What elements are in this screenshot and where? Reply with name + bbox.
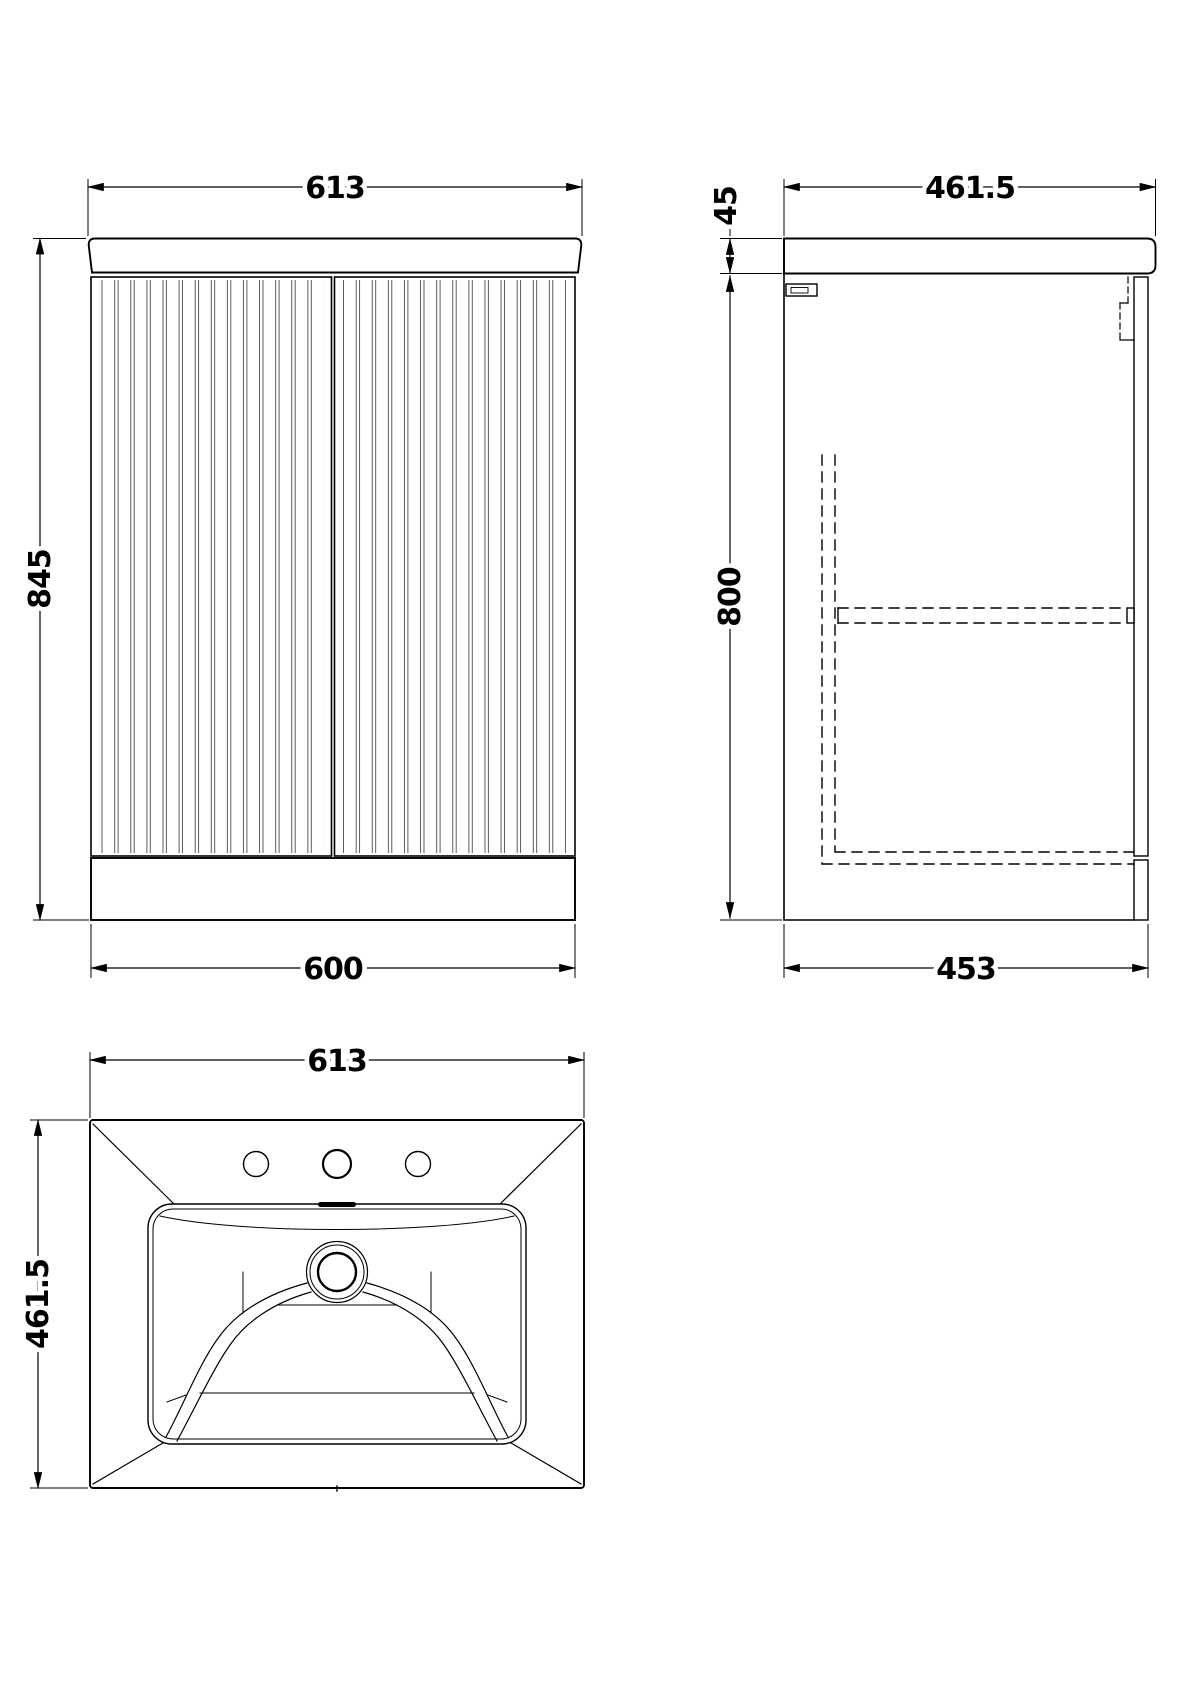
extension-lines <box>720 239 782 274</box>
front-elevation-view: 613 845 600 <box>23 171 582 987</box>
dim-front-height: 845 <box>23 239 89 921</box>
overflow-slot <box>318 1202 356 1207</box>
side-elevation-view: 461.5 45 800 453 <box>709 171 1156 987</box>
dim-label: 600 <box>303 952 363 987</box>
side-door-profile <box>1134 277 1148 856</box>
basin-plan-view: 613 461.5 <box>21 1044 584 1491</box>
side-plinth-profile <box>1134 860 1148 920</box>
front-left-door-fluting <box>99 280 324 853</box>
dim-front-width-bottom: 600 <box>91 924 575 987</box>
front-worktop <box>89 239 582 273</box>
dim-label: 453 <box>936 952 996 987</box>
dim-side-worktop-thickness: 45 <box>709 186 782 273</box>
wall-fixing-bracket-slot <box>791 288 808 294</box>
side-worktop <box>784 239 1156 274</box>
dim-basin-width: 613 <box>90 1044 584 1118</box>
front-plinth <box>91 858 575 920</box>
dim-label: 613 <box>307 1044 367 1079</box>
dim-side-depth-bottom: 453 <box>784 924 1148 987</box>
bowl-rim-outer <box>148 1204 526 1444</box>
hinge-plate-hidden <box>1120 277 1128 340</box>
front-right-door-fluting <box>343 280 568 853</box>
dim-label: 613 <box>305 171 365 206</box>
dim-label: 461.5 <box>21 1259 56 1349</box>
dim-label: 800 <box>713 567 748 627</box>
tap-hole-right <box>406 1152 431 1177</box>
hidden-shelf-end-cap <box>1127 608 1134 623</box>
dim-side-cabinet-height: 800 <box>713 276 782 920</box>
side-carcass-back-and-bottom <box>784 274 1134 921</box>
hidden-shelf <box>838 608 1127 623</box>
dim-label: 845 <box>23 549 58 609</box>
dim-basin-depth: 461.5 <box>21 1120 88 1488</box>
dim-label: 45 <box>709 186 744 226</box>
hidden-service-void <box>822 455 1134 864</box>
vanity-technical-drawing: 613 845 600 461.5 <box>0 0 1190 1684</box>
dim-label: 461.5 <box>925 171 1015 206</box>
hinge-plate-solid <box>1120 303 1134 340</box>
dim-side-depth-top: 461.5 <box>784 171 1156 236</box>
tap-hole-left <box>244 1152 269 1177</box>
tap-hole-center <box>323 1150 351 1178</box>
dim-front-width-top: 613 <box>88 171 582 236</box>
technical-drawing-page: 613 845 600 461.5 <box>0 0 1190 1684</box>
